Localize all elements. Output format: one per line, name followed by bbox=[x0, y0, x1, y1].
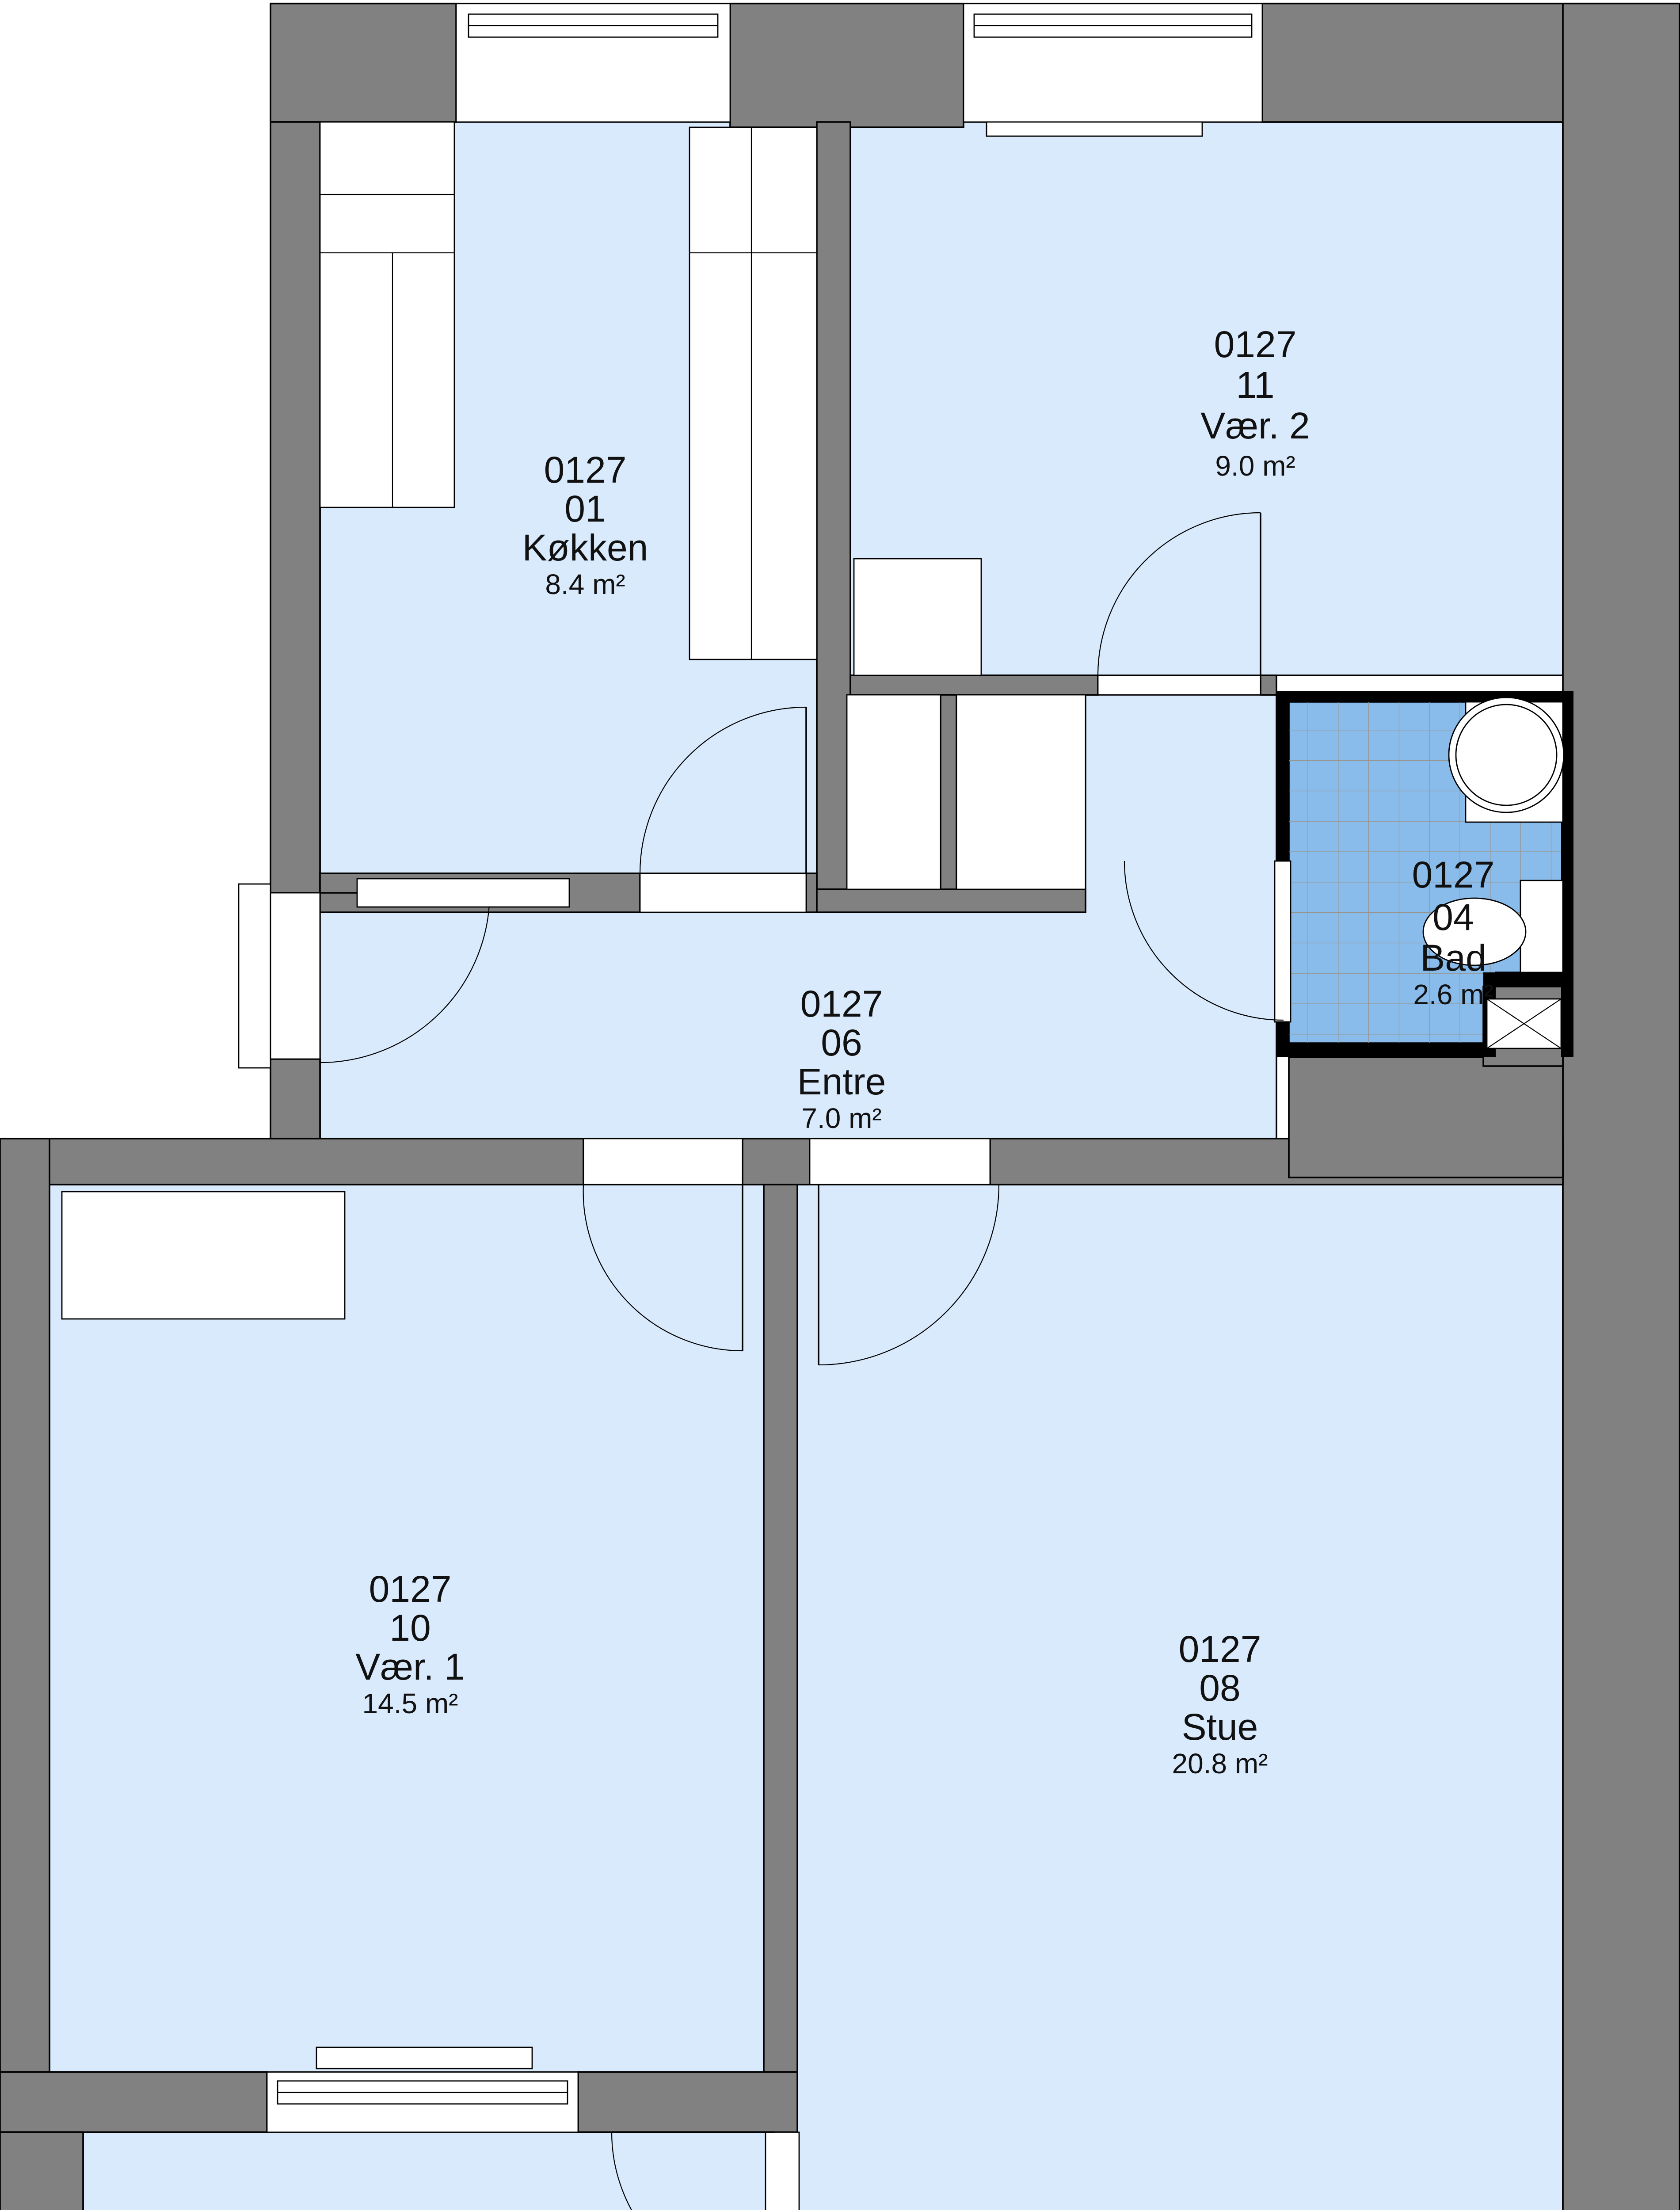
vaer1-closet bbox=[62, 1192, 345, 1319]
label-entre-number: 06 bbox=[821, 1022, 862, 1063]
label-entre-name: Entre bbox=[797, 1061, 886, 1102]
floor-plan-canvas: 0127 01 Køkken 8.4 m² 0127 11 Vær. 2 9.0… bbox=[0, 0, 1680, 2210]
wall-vaer1-bottom-a bbox=[0, 2072, 267, 2132]
bad-wall-top bbox=[1276, 691, 1573, 702]
vaer2-door-threshold bbox=[1098, 675, 1261, 695]
bad-door-threshold bbox=[1275, 861, 1291, 1022]
label-stue-number: 08 bbox=[1199, 1667, 1240, 1709]
label-stue-area: 20.8 m² bbox=[1172, 1748, 1268, 1779]
wall-entre-bottom-b bbox=[743, 1139, 810, 1185]
entrance-door-recess bbox=[239, 884, 270, 1068]
label-vaer2-area: 9.0 m² bbox=[1215, 450, 1295, 482]
wall-vaer2-bottom-left bbox=[850, 675, 1098, 695]
wall-right-exterior bbox=[1563, 4, 1680, 2210]
kitchen-wall-hatch bbox=[357, 879, 569, 907]
wall-vaer1-bottom-b bbox=[578, 2072, 797, 2132]
label-vaer2-number: 11 bbox=[1236, 364, 1274, 406]
wall-bath-below bbox=[1289, 1057, 1563, 1177]
stue-door-threshold bbox=[810, 1139, 990, 1185]
entre-closet-right bbox=[956, 695, 1086, 889]
wall-vaer2-bottom-stub bbox=[1261, 675, 1276, 695]
entrance-door-threshold bbox=[270, 893, 320, 1059]
wall-left-upper-b bbox=[270, 1059, 320, 1139]
shower-basin-outer bbox=[1449, 697, 1564, 812]
label-bad-code: 0127 bbox=[1412, 854, 1495, 895]
floor-plan-page: 0127 01 Køkken 8.4 m² 0127 11 Vær. 2 9.0… bbox=[0, 0, 1680, 2210]
wall-top-mid bbox=[730, 4, 964, 127]
toilet-cistern bbox=[1520, 880, 1563, 972]
wall-vaer1-stue-divider bbox=[764, 1185, 797, 2072]
label-bad-number: 04 bbox=[1432, 896, 1474, 938]
wall-altan-left bbox=[0, 2132, 83, 2210]
label-koekken-name: Køkken bbox=[522, 527, 648, 568]
label-vaer2-code: 0127 bbox=[1214, 324, 1297, 365]
kitchen-counter-right bbox=[690, 127, 817, 659]
label-bad-name: Bad bbox=[1420, 937, 1486, 979]
label-entre-code: 0127 bbox=[800, 983, 883, 1025]
wall-kitchen-vaer2-divider bbox=[817, 122, 850, 889]
label-vaer1-area: 14.5 m² bbox=[362, 1688, 458, 1719]
label-stue-name: Stue bbox=[1182, 1706, 1258, 1748]
label-vaer1-name: Vær. 1 bbox=[355, 1646, 465, 1688]
label-vaer2-name: Vær. 2 bbox=[1200, 405, 1310, 446]
bad-wall-left-upper bbox=[1276, 691, 1289, 861]
label-entre-area: 7.0 m² bbox=[801, 1102, 881, 1134]
kitchen-door-threshold bbox=[640, 873, 806, 912]
entre-closet-left bbox=[847, 695, 941, 889]
label-bad-area: 2.6 m² bbox=[1413, 979, 1493, 1010]
wall-top-corner-left bbox=[270, 4, 456, 122]
label-vaer1-number: 10 bbox=[389, 1607, 430, 1649]
altan-door-threshold bbox=[766, 2132, 799, 2210]
vaer1-radiator bbox=[316, 2047, 532, 2069]
wall-entre-bottom-a bbox=[0, 1139, 583, 1185]
wall-niche-bottom bbox=[817, 889, 1086, 912]
bad-wall-bottom-left bbox=[1276, 1043, 1496, 1057]
wall-closet-divider bbox=[941, 695, 956, 889]
wall-entre-top-stub bbox=[806, 873, 817, 912]
kitchen-counter-left bbox=[320, 122, 454, 507]
wall-left-lower bbox=[0, 1139, 50, 2072]
label-koekken-area: 8.4 m² bbox=[545, 568, 625, 600]
vaer1-door-threshold bbox=[583, 1139, 743, 1185]
label-stue-code: 0127 bbox=[1179, 1628, 1261, 1670]
room-altan-floor bbox=[25, 2132, 767, 2210]
label-koekken-number: 01 bbox=[564, 488, 606, 530]
vaer2-closet bbox=[854, 559, 981, 675]
label-koekken-code: 0127 bbox=[544, 449, 627, 491]
label-vaer1-code: 0127 bbox=[369, 1568, 452, 1610]
vaer2-radiator bbox=[987, 122, 1202, 136]
wall-left-upper-a bbox=[270, 122, 320, 893]
